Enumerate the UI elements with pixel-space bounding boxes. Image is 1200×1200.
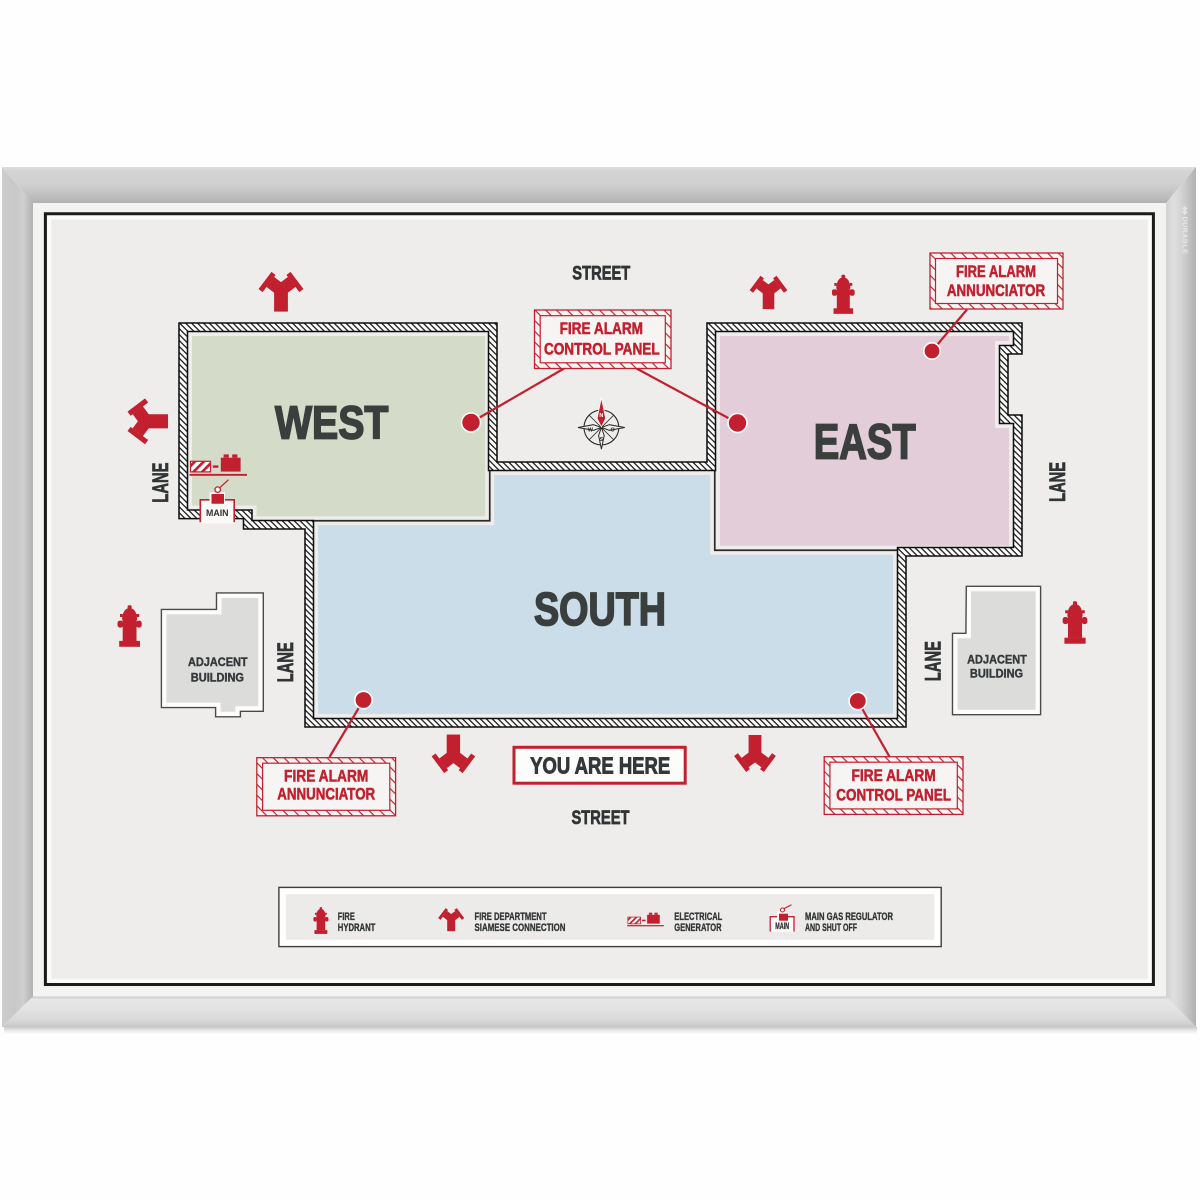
svg-text:STREET: STREET	[572, 263, 630, 285]
svg-text:BUILDING: BUILDING	[191, 671, 244, 685]
svg-text:AND SHUT OFF: AND SHUT OFF	[805, 922, 857, 934]
svg-text:O: O	[611, 427, 616, 433]
svg-text:GENERATOR: GENERATOR	[674, 922, 721, 934]
svg-text:LANE: LANE	[273, 642, 298, 682]
svg-text:ANNUNCIATOR: ANNUNCIATOR	[947, 281, 1045, 300]
svg-text:EAST: EAST	[814, 415, 916, 469]
svg-text:SIAMESE CONNECTION: SIAMESE CONNECTION	[475, 922, 566, 934]
svg-text:W: W	[588, 427, 594, 433]
svg-text:S: S	[600, 437, 604, 443]
svg-text:CONTROL PANEL: CONTROL PANEL	[836, 786, 951, 805]
svg-text:FIRE ALARM: FIRE ALARM	[284, 766, 368, 785]
svg-text:FIRE ALARM: FIRE ALARM	[956, 262, 1036, 281]
svg-text:WEST: WEST	[275, 396, 388, 448]
svg-text:BUILDING: BUILDING	[970, 667, 1023, 681]
svg-text:HYDRANT: HYDRANT	[338, 922, 376, 934]
svg-text:DURABLE: DURABLE	[1180, 217, 1189, 255]
svg-text:FIRE ALARM: FIRE ALARM	[851, 766, 935, 785]
svg-text:N: N	[599, 413, 603, 419]
svg-text:SOUTH: SOUTH	[534, 583, 666, 635]
svg-text:CONTROL PANEL: CONTROL PANEL	[544, 340, 660, 359]
svg-text:STREET: STREET	[572, 807, 630, 829]
svg-text:LANE: LANE	[920, 641, 945, 681]
svg-text:ADJACENT: ADJACENT	[188, 655, 248, 669]
svg-text:MAIN: MAIN	[775, 921, 789, 931]
svg-text:ANNUNCIATOR: ANNUNCIATOR	[277, 785, 375, 804]
svg-text:LANE: LANE	[148, 463, 173, 503]
svg-text:ADJACENT: ADJACENT	[967, 653, 1027, 667]
svg-text:LANE: LANE	[1045, 462, 1070, 502]
svg-text:FIRE ALARM: FIRE ALARM	[560, 319, 643, 338]
svg-text:YOU ARE HERE: YOU ARE HERE	[530, 753, 670, 779]
